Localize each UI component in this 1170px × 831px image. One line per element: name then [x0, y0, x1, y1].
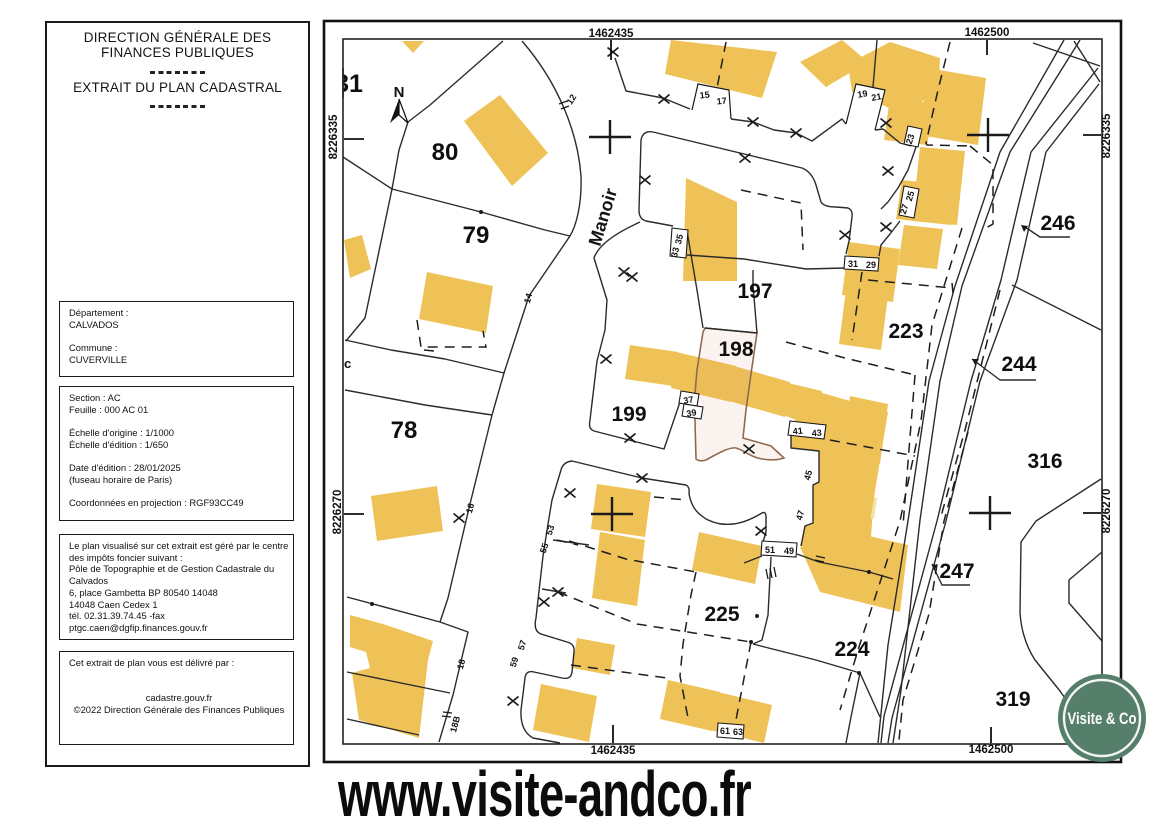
svg-text:1462500: 1462500 [965, 27, 1010, 39]
svg-text:39: 39 [686, 407, 698, 419]
svg-text:19: 19 [857, 88, 869, 100]
svg-text:31: 31 [848, 259, 858, 269]
svg-text:43: 43 [811, 428, 822, 439]
svg-text:14: 14 [522, 292, 534, 304]
svg-text:224: 224 [834, 638, 869, 661]
svg-text:18: 18 [455, 658, 467, 670]
svg-text:199: 199 [611, 403, 646, 426]
svg-text:1462435: 1462435 [589, 28, 634, 40]
svg-text:c: c [344, 356, 351, 371]
svg-text:319: 319 [995, 688, 1030, 711]
svg-text:61: 61 [720, 726, 730, 736]
svg-text:17: 17 [716, 96, 727, 107]
svg-text:Visite & Co: Visite & Co [1068, 710, 1137, 728]
svg-text:79: 79 [463, 222, 490, 249]
svg-text:8226270: 8226270 [1101, 489, 1113, 534]
svg-text:57: 57 [516, 639, 529, 652]
svg-text:12: 12 [565, 93, 579, 107]
svg-text:244: 244 [1001, 353, 1036, 376]
svg-text:49: 49 [784, 546, 794, 556]
svg-text:1462435: 1462435 [591, 745, 636, 757]
svg-text:21: 21 [871, 91, 883, 103]
svg-text:8226335: 8226335 [1101, 113, 1113, 158]
svg-text:63: 63 [733, 727, 743, 737]
svg-text:16: 16 [464, 502, 476, 514]
svg-text:Manoir: Manoir [585, 186, 621, 248]
svg-text:N: N [394, 84, 405, 101]
svg-text:37: 37 [683, 394, 695, 406]
svg-text:15: 15 [699, 90, 710, 101]
svg-text:41: 41 [792, 426, 803, 437]
svg-text:246: 246 [1040, 212, 1075, 235]
svg-text:223: 223 [888, 320, 923, 343]
svg-text:1462500: 1462500 [969, 744, 1014, 756]
svg-text:316: 316 [1027, 450, 1062, 473]
svg-text:8226335: 8226335 [328, 114, 340, 159]
svg-text:8226270: 8226270 [332, 490, 344, 535]
svg-text:197: 197 [737, 280, 772, 303]
svg-text:198: 198 [718, 338, 753, 361]
svg-text:53: 53 [544, 524, 557, 537]
svg-text:247: 247 [939, 560, 974, 583]
svg-text:55: 55 [538, 542, 551, 555]
svg-text:80: 80 [432, 139, 459, 166]
svg-text:225: 225 [704, 603, 739, 626]
svg-text:45: 45 [802, 469, 814, 481]
svg-text:51: 51 [765, 545, 775, 555]
svg-text:59: 59 [508, 656, 521, 669]
svg-text:78: 78 [391, 417, 418, 444]
svg-text:47: 47 [794, 509, 806, 521]
svg-text:29: 29 [866, 260, 876, 270]
